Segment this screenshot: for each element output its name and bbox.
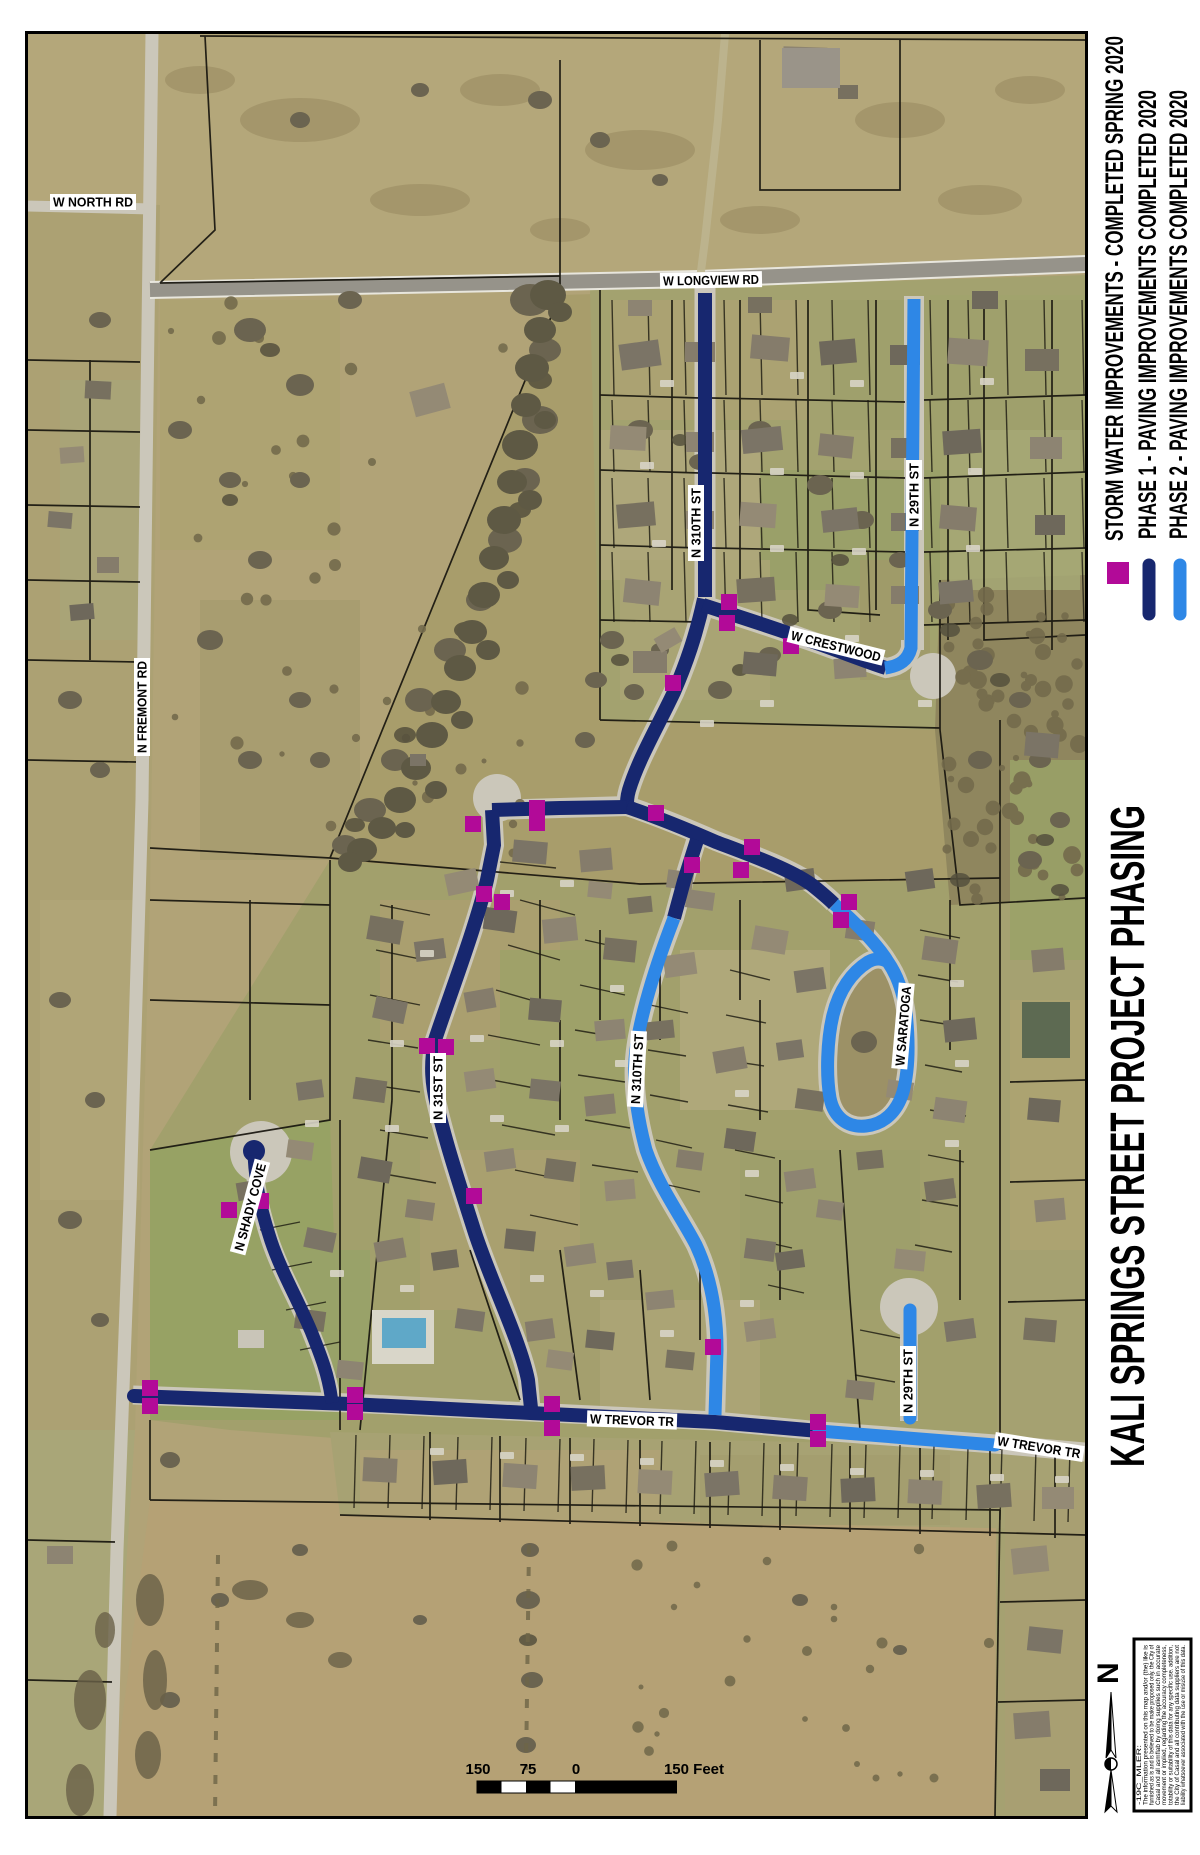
svg-text:W NORTH RD: W NORTH RD xyxy=(53,195,133,210)
svg-text:N: N xyxy=(1092,1662,1125,1684)
svg-text:75: 75 xyxy=(520,1761,537,1778)
svg-text:W LONGVIEW RD: W LONGVIEW RD xyxy=(663,272,759,289)
svg-text:N 29TH ST: N 29TH ST xyxy=(901,1349,916,1413)
svg-text:W TREVOR TR: W TREVOR TR xyxy=(590,1411,675,1429)
svg-text:KALI SPRINGS STREET PROJECT PH: KALI SPRINGS STREET PROJECT PHASING xyxy=(1102,805,1155,1467)
svg-text:PHASE 1 - PAVING IMPROVEMENTS: PHASE 1 - PAVING IMPROVEMENTS COMPLETED … xyxy=(1134,90,1162,539)
svg-text:liability whatsoever associate: liability whatsoever associated with the… xyxy=(1180,1645,1187,1805)
svg-text:150 Feet: 150 Feet xyxy=(664,1761,724,1778)
svg-text:PHASE 2 - PAVING IMPROVEMENTS: PHASE 2 - PAVING IMPROVEMENTS COMPLETED … xyxy=(1165,90,1193,539)
svg-text:N 31ST ST: N 31ST ST xyxy=(431,1056,446,1120)
svg-text:N 310TH ST: N 310TH ST xyxy=(689,488,704,558)
svg-text:STORM WATER IMPROVEMENTS - COM: STORM WATER IMPROVEMENTS - COMPLETED SPR… xyxy=(1101,36,1129,541)
svg-text:N FREMONT RD: N FREMONT RD xyxy=(135,661,150,753)
svg-text:150: 150 xyxy=(465,1761,490,1778)
svg-text:0: 0 xyxy=(572,1761,580,1778)
svg-text:N 29TH ST: N 29TH ST xyxy=(907,463,922,527)
